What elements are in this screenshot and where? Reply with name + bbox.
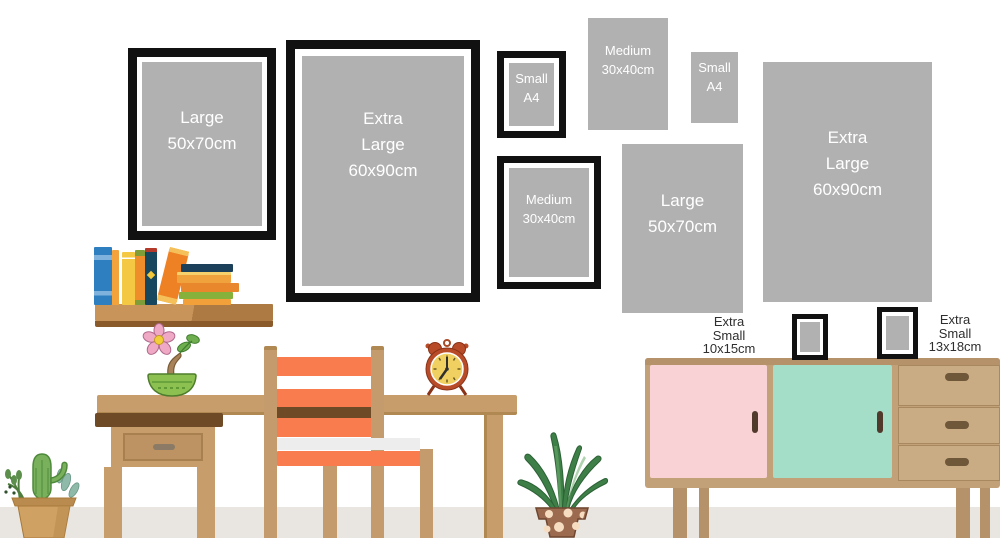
book-stack-item	[179, 292, 233, 299]
frame-extra-small-13x18	[877, 307, 918, 359]
aloe-pot	[536, 508, 588, 537]
chair-leg	[420, 449, 433, 538]
size-label-line: Small	[915, 327, 995, 341]
size-label-line: 60x90cm	[302, 158, 464, 184]
size-label-line: Medium	[509, 190, 589, 209]
cactus-pot-plant	[0, 442, 92, 538]
desk-edge-behind-chair	[277, 407, 371, 418]
size-label-line: Extra	[302, 106, 464, 132]
book-spine	[145, 248, 157, 305]
sideboard-drawer	[898, 365, 1000, 406]
sideboard-leg	[956, 488, 970, 538]
book-ornament	[147, 271, 155, 279]
size-label: Small A4	[509, 69, 554, 107]
wall-art-size-guide: Large 50x70cm Extra Large 60x90cm Small …	[0, 0, 1000, 538]
book-spine	[135, 250, 145, 305]
size-label: Extra Large 60x90cm	[302, 106, 464, 184]
print-area	[886, 316, 909, 350]
size-label-line: Extra	[689, 315, 769, 329]
frame-small-a4: Small A4	[497, 51, 566, 138]
drawer-handle	[945, 421, 969, 429]
chair-slat	[277, 389, 371, 407]
print-extra-large-60x90: Extra Large 60x90cm	[763, 62, 932, 302]
size-label-line: Extra	[915, 313, 995, 327]
size-label-line: 50x70cm	[142, 131, 262, 157]
cactus	[33, 454, 67, 500]
frame-extra-large-60x90: Extra Large 60x90cm	[286, 40, 480, 302]
size-label-line: Small	[691, 58, 738, 77]
size-label-line: 10x15cm	[689, 342, 769, 356]
desk-edge	[95, 413, 223, 427]
size-label: Extra Large 60x90cm	[763, 125, 932, 203]
size-label-line: Large	[622, 188, 743, 214]
size-label-line: 30x40cm	[509, 209, 589, 228]
sideboard-leg	[673, 488, 687, 538]
wall-shelf	[95, 304, 273, 321]
size-label: Large 50x70cm	[142, 105, 262, 157]
plant-leaves	[176, 333, 200, 354]
print-area	[800, 322, 820, 352]
print-area: Medium 30x40cm	[509, 168, 589, 277]
size-label-line: 30x40cm	[588, 60, 668, 79]
size-label-line: A4	[509, 88, 554, 107]
plant-stem	[168, 353, 181, 376]
door-handle	[877, 411, 883, 433]
desk-leg	[484, 415, 503, 538]
frame-large-50x70: Large 50x70cm	[128, 48, 276, 240]
print-area: Small A4	[509, 63, 554, 126]
size-label-line: Large	[302, 132, 464, 158]
plant-pot	[12, 498, 76, 538]
chair-seat-shadow	[277, 438, 420, 450]
size-label: Medium 30x40cm	[588, 41, 668, 79]
size-label-line: Small	[509, 69, 554, 88]
bookshelf-books	[93, 246, 243, 305]
frame-medium-30x40: Medium 30x40cm	[497, 156, 601, 289]
size-label-line: Extra	[763, 125, 932, 151]
print-area: Extra Large 60x90cm	[302, 56, 464, 286]
label-extra-small-10x15: Extra Small 10x15cm	[689, 315, 769, 356]
drawer-handle	[945, 373, 969, 381]
chair-back-post	[264, 346, 277, 538]
desk-leg	[104, 467, 122, 538]
sideboard-door-pink	[650, 365, 767, 478]
print-large-50x70: Large 50x70cm	[622, 144, 743, 313]
alarm-clock	[421, 337, 473, 397]
size-label-line: Medium	[588, 41, 668, 60]
size-label-line: Large	[763, 151, 932, 177]
aloe-plant	[514, 424, 610, 538]
print-area: Large 50x70cm	[142, 62, 262, 226]
size-label: Small A4	[691, 58, 738, 96]
book-spine	[122, 252, 135, 305]
plant-bowl	[148, 374, 196, 396]
desk-drawer	[123, 433, 203, 461]
flower	[142, 324, 176, 357]
size-label-line: 60x90cm	[763, 177, 932, 203]
sideboard-door-mint	[773, 365, 892, 478]
drawer-handle	[153, 444, 175, 450]
flower-pot-plant	[144, 324, 200, 398]
size-label-line: Small	[689, 329, 769, 343]
book-stack-item	[177, 272, 231, 283]
book-stack-item	[183, 299, 231, 305]
size-label-line: 13x18cm	[915, 340, 995, 354]
print-small-a4: Small A4	[691, 52, 738, 123]
door-handle	[752, 411, 758, 433]
chair-leg	[323, 466, 337, 538]
frame-extra-small-10x15	[792, 314, 828, 360]
label-extra-small-13x18: Extra Small 13x18cm	[915, 313, 995, 354]
sideboard-leg	[699, 488, 709, 538]
book-stack-item	[181, 283, 239, 292]
chair-slat	[277, 357, 371, 376]
chair-slat	[277, 418, 371, 437]
book-spine	[94, 247, 112, 305]
size-label-line: A4	[691, 77, 738, 96]
print-medium-30x40: Medium 30x40cm	[588, 18, 668, 130]
size-label: Large 50x70cm	[622, 188, 743, 240]
size-label-line: 50x70cm	[622, 214, 743, 240]
book-stack-item	[181, 264, 233, 272]
size-label-line: Large	[142, 105, 262, 131]
sideboard-drawer	[898, 445, 1000, 481]
chair-seat	[277, 451, 421, 466]
sideboard-drawer	[898, 407, 1000, 444]
fern-left	[4, 469, 24, 500]
drawer-handle	[945, 458, 969, 466]
sideboard-leg	[980, 488, 990, 538]
desk-leg	[197, 467, 215, 538]
aloe-leaves	[518, 433, 608, 512]
size-label: Medium 30x40cm	[509, 190, 589, 228]
book-spine	[112, 250, 119, 305]
